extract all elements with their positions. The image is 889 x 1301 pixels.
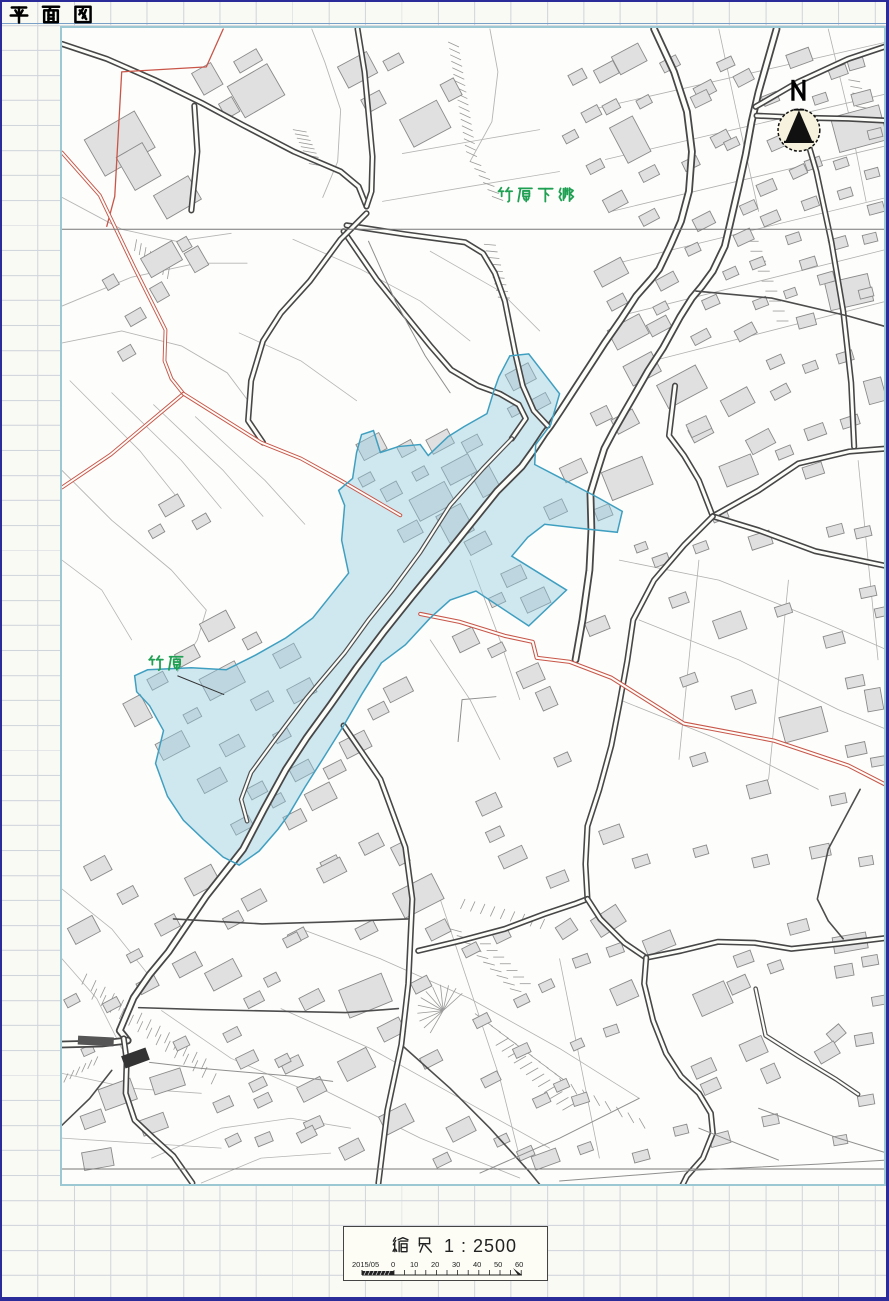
svg-text:30: 30 xyxy=(452,1260,460,1269)
svg-text:10: 10 xyxy=(410,1260,418,1269)
svg-text:2015/05: 2015/05 xyxy=(352,1260,379,1269)
svg-text:0: 0 xyxy=(391,1260,395,1269)
svg-text:1 : 2500: 1 : 2500 xyxy=(444,1236,517,1256)
svg-text:60: 60 xyxy=(515,1260,523,1269)
svg-text:20: 20 xyxy=(431,1260,439,1269)
svg-text:40: 40 xyxy=(473,1260,481,1269)
svg-text:50: 50 xyxy=(494,1260,502,1269)
